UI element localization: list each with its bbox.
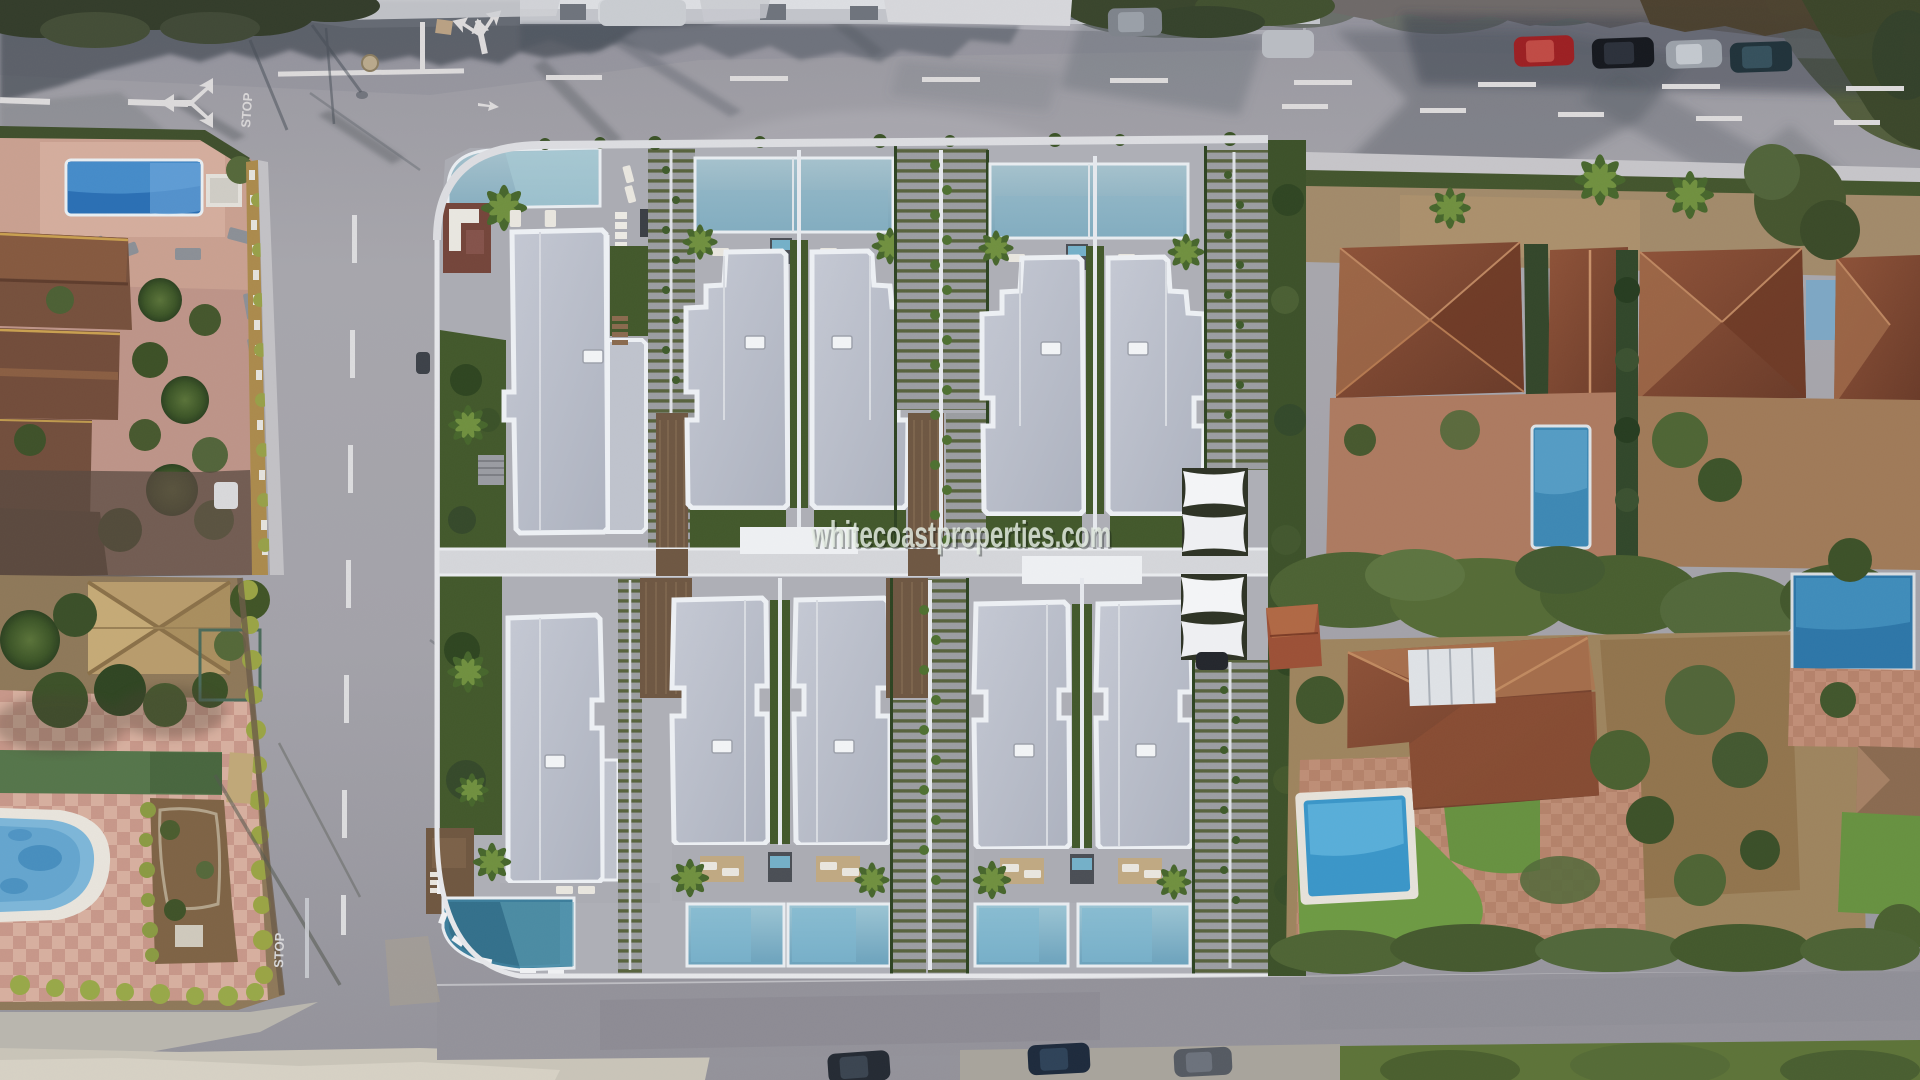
svg-text:whitecoastproperties.com: whitecoastproperties.com — [810, 514, 1111, 555]
svg-text:STOP: STOP — [271, 932, 287, 968]
svg-text:STOP: STOP — [238, 92, 255, 128]
